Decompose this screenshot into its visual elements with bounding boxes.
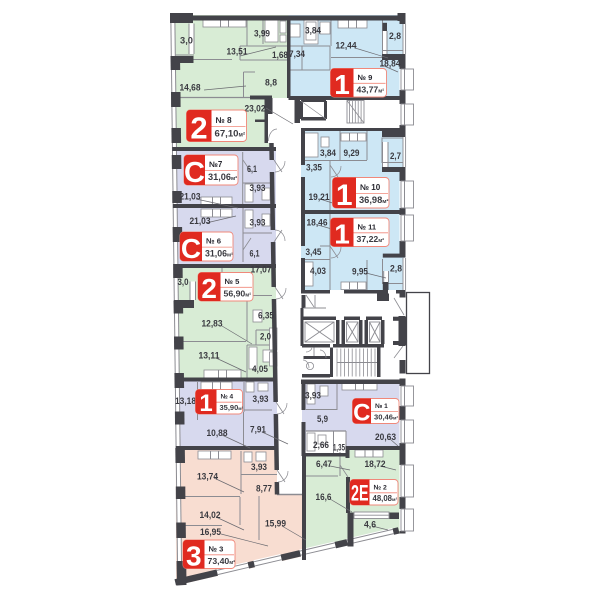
svg-text:20,63: 20,63 — [375, 432, 396, 442]
svg-text:№ 1: № 1 — [375, 403, 388, 410]
svg-text:7,91: 7,91 — [250, 425, 266, 435]
svg-text:3,93: 3,93 — [250, 218, 266, 228]
svg-text:4,03: 4,03 — [310, 266, 326, 276]
svg-text:19,21: 19,21 — [309, 192, 330, 202]
svg-text:№7: №7 — [209, 160, 223, 169]
svg-text:18,84: 18,84 — [380, 59, 402, 69]
svg-text:1,35: 1,35 — [333, 443, 345, 453]
svg-text:№ 6: № 6 — [206, 237, 221, 246]
svg-text:C: C — [184, 157, 205, 189]
svg-text:7,34: 7,34 — [289, 49, 306, 59]
svg-text:2: 2 — [190, 111, 207, 146]
svg-text:8,77: 8,77 — [256, 484, 272, 494]
svg-text:13,18: 13,18 — [175, 396, 196, 406]
svg-text:3,84: 3,84 — [320, 148, 337, 158]
svg-text:1: 1 — [334, 219, 350, 250]
svg-text:№ 3: № 3 — [209, 544, 224, 553]
svg-text:13,74: 13,74 — [197, 472, 219, 482]
svg-text:C: C — [181, 233, 201, 264]
svg-text:№ 8: № 8 — [216, 115, 233, 125]
svg-text:2E: 2E — [351, 480, 369, 505]
svg-text:2,8: 2,8 — [389, 31, 401, 41]
svg-text:2: 2 — [201, 273, 217, 304]
svg-text:3,0: 3,0 — [180, 36, 193, 46]
svg-text:9,29: 9,29 — [344, 148, 360, 158]
svg-text:3,93: 3,93 — [253, 394, 269, 404]
svg-text:2,7: 2,7 — [390, 151, 401, 161]
svg-text:2,66: 2,66 — [313, 440, 329, 450]
svg-text:21,03: 21,03 — [190, 216, 211, 226]
svg-text:№ 10: № 10 — [360, 183, 381, 192]
svg-text:1,68: 1,68 — [272, 50, 288, 60]
svg-text:23,02: 23,02 — [245, 104, 266, 114]
svg-text:1: 1 — [334, 69, 350, 100]
svg-text:13,51: 13,51 — [227, 47, 248, 57]
svg-text:№ 9: № 9 — [358, 73, 373, 82]
svg-text:3,0: 3,0 — [178, 277, 189, 287]
svg-text:3,93: 3,93 — [251, 462, 267, 472]
svg-text:C: C — [353, 400, 370, 427]
svg-text:3,93: 3,93 — [250, 183, 266, 193]
svg-text:15,99: 15,99 — [265, 519, 286, 529]
svg-text:№ 4: № 4 — [221, 394, 234, 401]
svg-text:18,46: 18,46 — [307, 218, 328, 228]
svg-text:8,8: 8,8 — [265, 78, 277, 88]
svg-text:3: 3 — [186, 541, 202, 572]
svg-text:6,1: 6,1 — [247, 164, 257, 174]
svg-text:1: 1 — [336, 179, 353, 212]
svg-text:10,88: 10,88 — [207, 428, 228, 438]
svg-text:4,05: 4,05 — [252, 364, 268, 374]
svg-text:16,6: 16,6 — [316, 492, 332, 502]
svg-text:3,99: 3,99 — [254, 29, 270, 39]
svg-text:4,6: 4,6 — [364, 520, 376, 530]
svg-text:6,1: 6,1 — [250, 249, 260, 259]
svg-text:1: 1 — [199, 390, 212, 417]
svg-text:6,47: 6,47 — [316, 459, 332, 469]
svg-text:13,11: 13,11 — [199, 351, 220, 361]
svg-text:2,8: 2,8 — [390, 264, 402, 274]
svg-text:№ 11: № 11 — [358, 222, 377, 231]
svg-text:№ 5: № 5 — [225, 277, 241, 286]
svg-text:5,9: 5,9 — [317, 414, 328, 424]
svg-text:3,45: 3,45 — [306, 247, 322, 257]
svg-text:№ 2: № 2 — [374, 484, 387, 491]
svg-text:3,84: 3,84 — [305, 26, 322, 36]
svg-text:6,35: 6,35 — [258, 311, 274, 321]
svg-text:3,35: 3,35 — [306, 163, 322, 173]
svg-text:12,44: 12,44 — [336, 41, 358, 51]
svg-text:3,93: 3,93 — [305, 391, 321, 401]
svg-text:18,72: 18,72 — [365, 459, 386, 469]
svg-text:16,95: 16,95 — [200, 527, 221, 537]
svg-text:21,03: 21,03 — [180, 192, 201, 202]
svg-text:12,83: 12,83 — [202, 319, 223, 329]
svg-text:2,0: 2,0 — [260, 332, 271, 342]
svg-text:17,07: 17,07 — [251, 265, 272, 275]
svg-text:14,68: 14,68 — [180, 83, 201, 93]
svg-text:9,95: 9,95 — [352, 267, 368, 277]
svg-text:14,02: 14,02 — [200, 510, 221, 520]
